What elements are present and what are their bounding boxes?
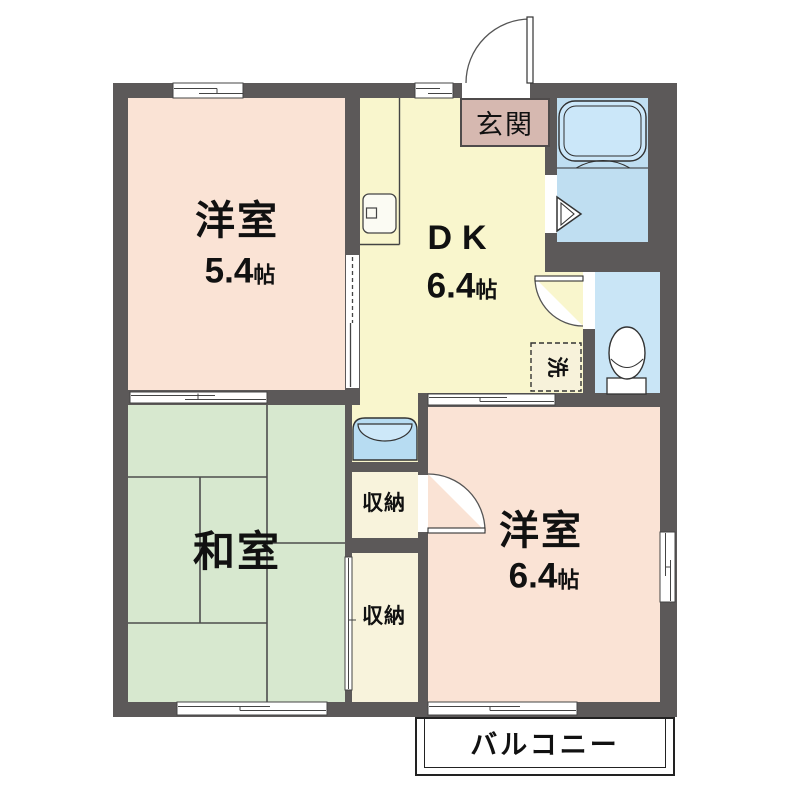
room-size-unit: 帖 <box>475 278 497 303</box>
room-size-unit: 帖 <box>253 263 275 288</box>
room-size-value: 5.4 <box>205 252 254 291</box>
sliding-door-icon <box>345 557 356 690</box>
pocket-door-icon <box>346 255 359 388</box>
room-label-japanese: 和室 <box>193 530 281 574</box>
room-size-value: 6.4 <box>509 557 558 596</box>
room-size-western2: 6.4帖 <box>509 559 580 596</box>
closet-label-upper: 収納 <box>362 493 406 515</box>
washbasin-icon <box>353 418 417 460</box>
room-size-value: 6.4 <box>427 267 476 306</box>
floor-plan: 玄関 <box>0 0 800 800</box>
folding-door-triangle-icon <box>557 197 581 231</box>
room-size-western1: 5.4帖 <box>205 254 276 291</box>
balcony-label: バルコニー <box>470 731 619 759</box>
window-icon <box>415 83 453 98</box>
room-label-western1: 洋室 <box>195 200 279 242</box>
closet-door-arc <box>428 474 485 533</box>
sliding-door-icon <box>428 394 555 405</box>
entrance-doorway <box>462 83 530 98</box>
entrance-door-arc <box>466 17 533 83</box>
closet-doorway <box>418 475 428 532</box>
room-label-western2: 洋室 <box>499 510 583 552</box>
laundry-label: 洗 <box>545 357 567 378</box>
sliding-glass-door-icon <box>428 702 577 715</box>
plan-linework <box>0 0 800 800</box>
window-icon <box>660 532 675 602</box>
toilet-doorway <box>583 272 595 329</box>
toilet-icon <box>607 327 646 394</box>
toilet-door-arc <box>535 276 583 326</box>
room-size-dk: 6.4帖 <box>427 269 498 306</box>
kitchen-sink-icon <box>360 98 400 245</box>
window-icon <box>173 83 243 98</box>
bathroom-doorway <box>545 175 557 233</box>
bathtub-icon <box>557 101 648 168</box>
room-size-unit: 帖 <box>557 568 579 593</box>
sliding-door-icon <box>130 392 267 403</box>
room-label-dk: DK <box>427 221 496 257</box>
window-icon <box>177 702 327 715</box>
closet-label-lower: 収納 <box>362 606 406 628</box>
